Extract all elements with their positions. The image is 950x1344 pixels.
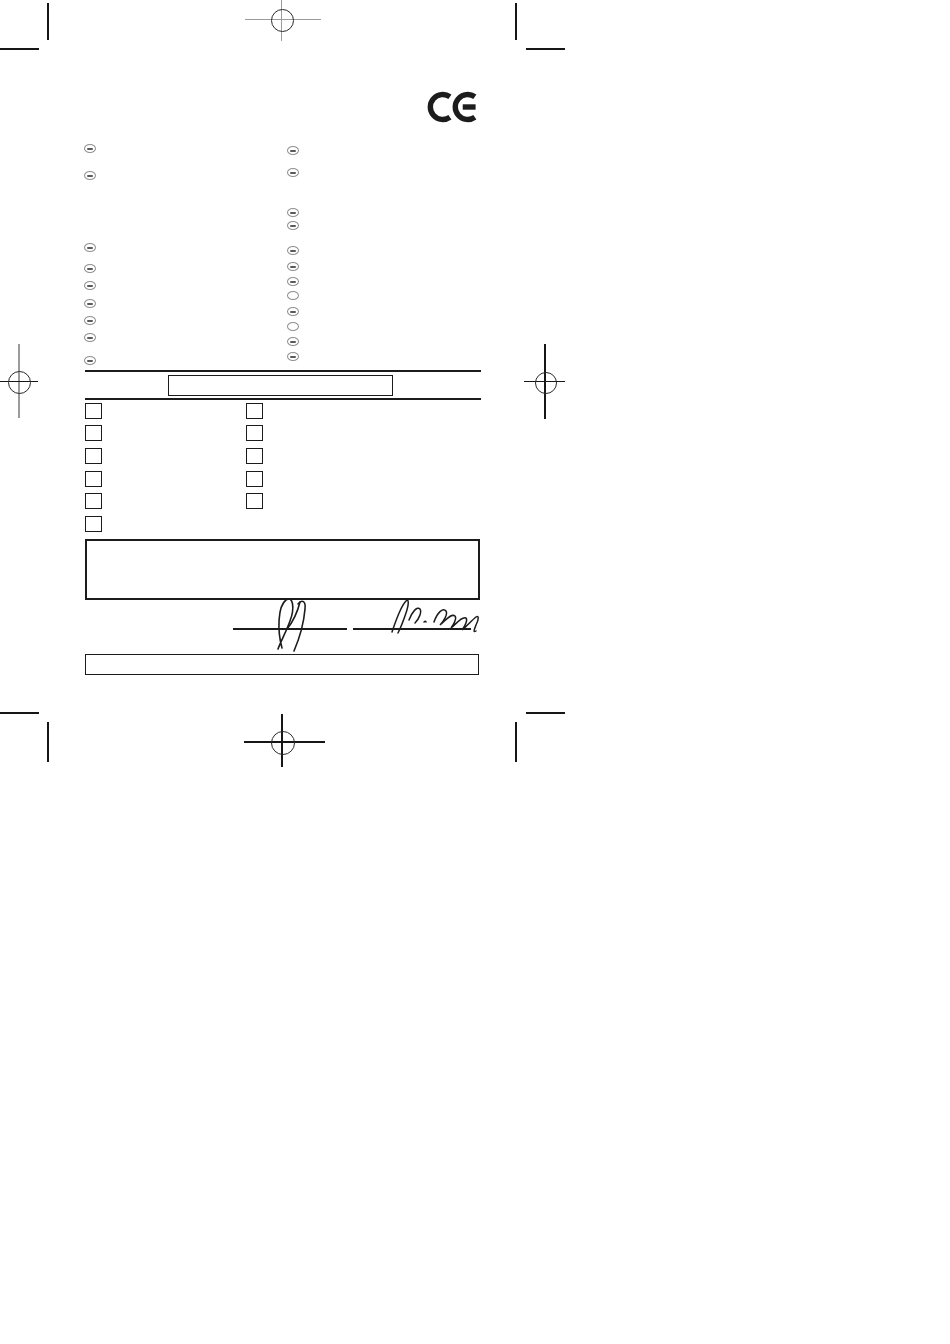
- language-badge-icon: [287, 262, 299, 271]
- language-badge-icon: [84, 243, 96, 252]
- crop-mark-top-right-horizontal: [526, 48, 565, 50]
- checkbox[interactable]: [85, 448, 102, 464]
- signature-line-right: [353, 628, 471, 630]
- checkbox[interactable]: [85, 516, 102, 532]
- title-box-text: [169, 376, 392, 395]
- language-badge-icon: [287, 146, 299, 155]
- language-badge-icon: [84, 171, 96, 180]
- crop-mark-top-left-vertical: [47, 3, 49, 40]
- checkbox[interactable]: [85, 471, 102, 487]
- checkbox[interactable]: [85, 425, 102, 441]
- crop-mark-top-right-vertical: [515, 3, 517, 40]
- language-badge-icon: [84, 333, 96, 342]
- signature-line-left: [233, 628, 347, 630]
- checkbox[interactable]: [85, 403, 102, 419]
- checkbox[interactable]: [246, 425, 263, 441]
- language-badge-icon: [84, 144, 96, 153]
- registration-mark-right-circle: [535, 372, 557, 394]
- crop-mark-bottom-right-horizontal: [526, 712, 565, 714]
- crop-mark-bottom-left-horizontal: [0, 712, 39, 714]
- checkbox[interactable]: [246, 403, 263, 419]
- scanned-document-page: [0, 0, 950, 1344]
- ce-logo-icon: [427, 90, 481, 124]
- crop-mark-top-left-horizontal: [0, 48, 39, 50]
- divider-line-top: [85, 370, 481, 372]
- title-box: [168, 375, 393, 396]
- checkbox[interactable]: [246, 471, 263, 487]
- divider-line-bottom: [85, 398, 481, 400]
- checkbox[interactable]: [246, 448, 263, 464]
- language-badge-icon: [287, 221, 299, 230]
- language-badge-icon: [84, 281, 96, 290]
- registration-mark-top-circle: [271, 9, 294, 32]
- registration-mark-bottom-circle: [271, 731, 295, 755]
- signature-handwriting-left-and-right: [230, 590, 480, 655]
- checkbox[interactable]: [85, 493, 102, 509]
- registration-mark-left-circle: [8, 371, 31, 394]
- language-badge-icon: [287, 277, 299, 286]
- language-badge-icon: [287, 322, 299, 331]
- language-badge-icon: [287, 168, 299, 177]
- crop-mark-bottom-right-vertical: [515, 722, 517, 762]
- language-badge-icon: [287, 337, 299, 346]
- language-badge-icon: [84, 316, 96, 325]
- language-badge-icon: [84, 264, 96, 273]
- footer-box-text: [86, 655, 478, 674]
- language-badge-icon: [287, 208, 299, 217]
- footer-box: [85, 654, 479, 675]
- language-badge-icon: [287, 246, 299, 255]
- signature-left: [278, 599, 305, 651]
- language-badge-icon: [84, 356, 96, 365]
- crop-mark-bottom-left-vertical: [47, 722, 49, 762]
- checkbox[interactable]: [246, 493, 263, 509]
- language-badge-icon: [287, 291, 299, 300]
- language-badge-icon: [287, 307, 299, 316]
- language-badge-icon: [84, 299, 96, 308]
- language-badge-icon: [287, 352, 299, 361]
